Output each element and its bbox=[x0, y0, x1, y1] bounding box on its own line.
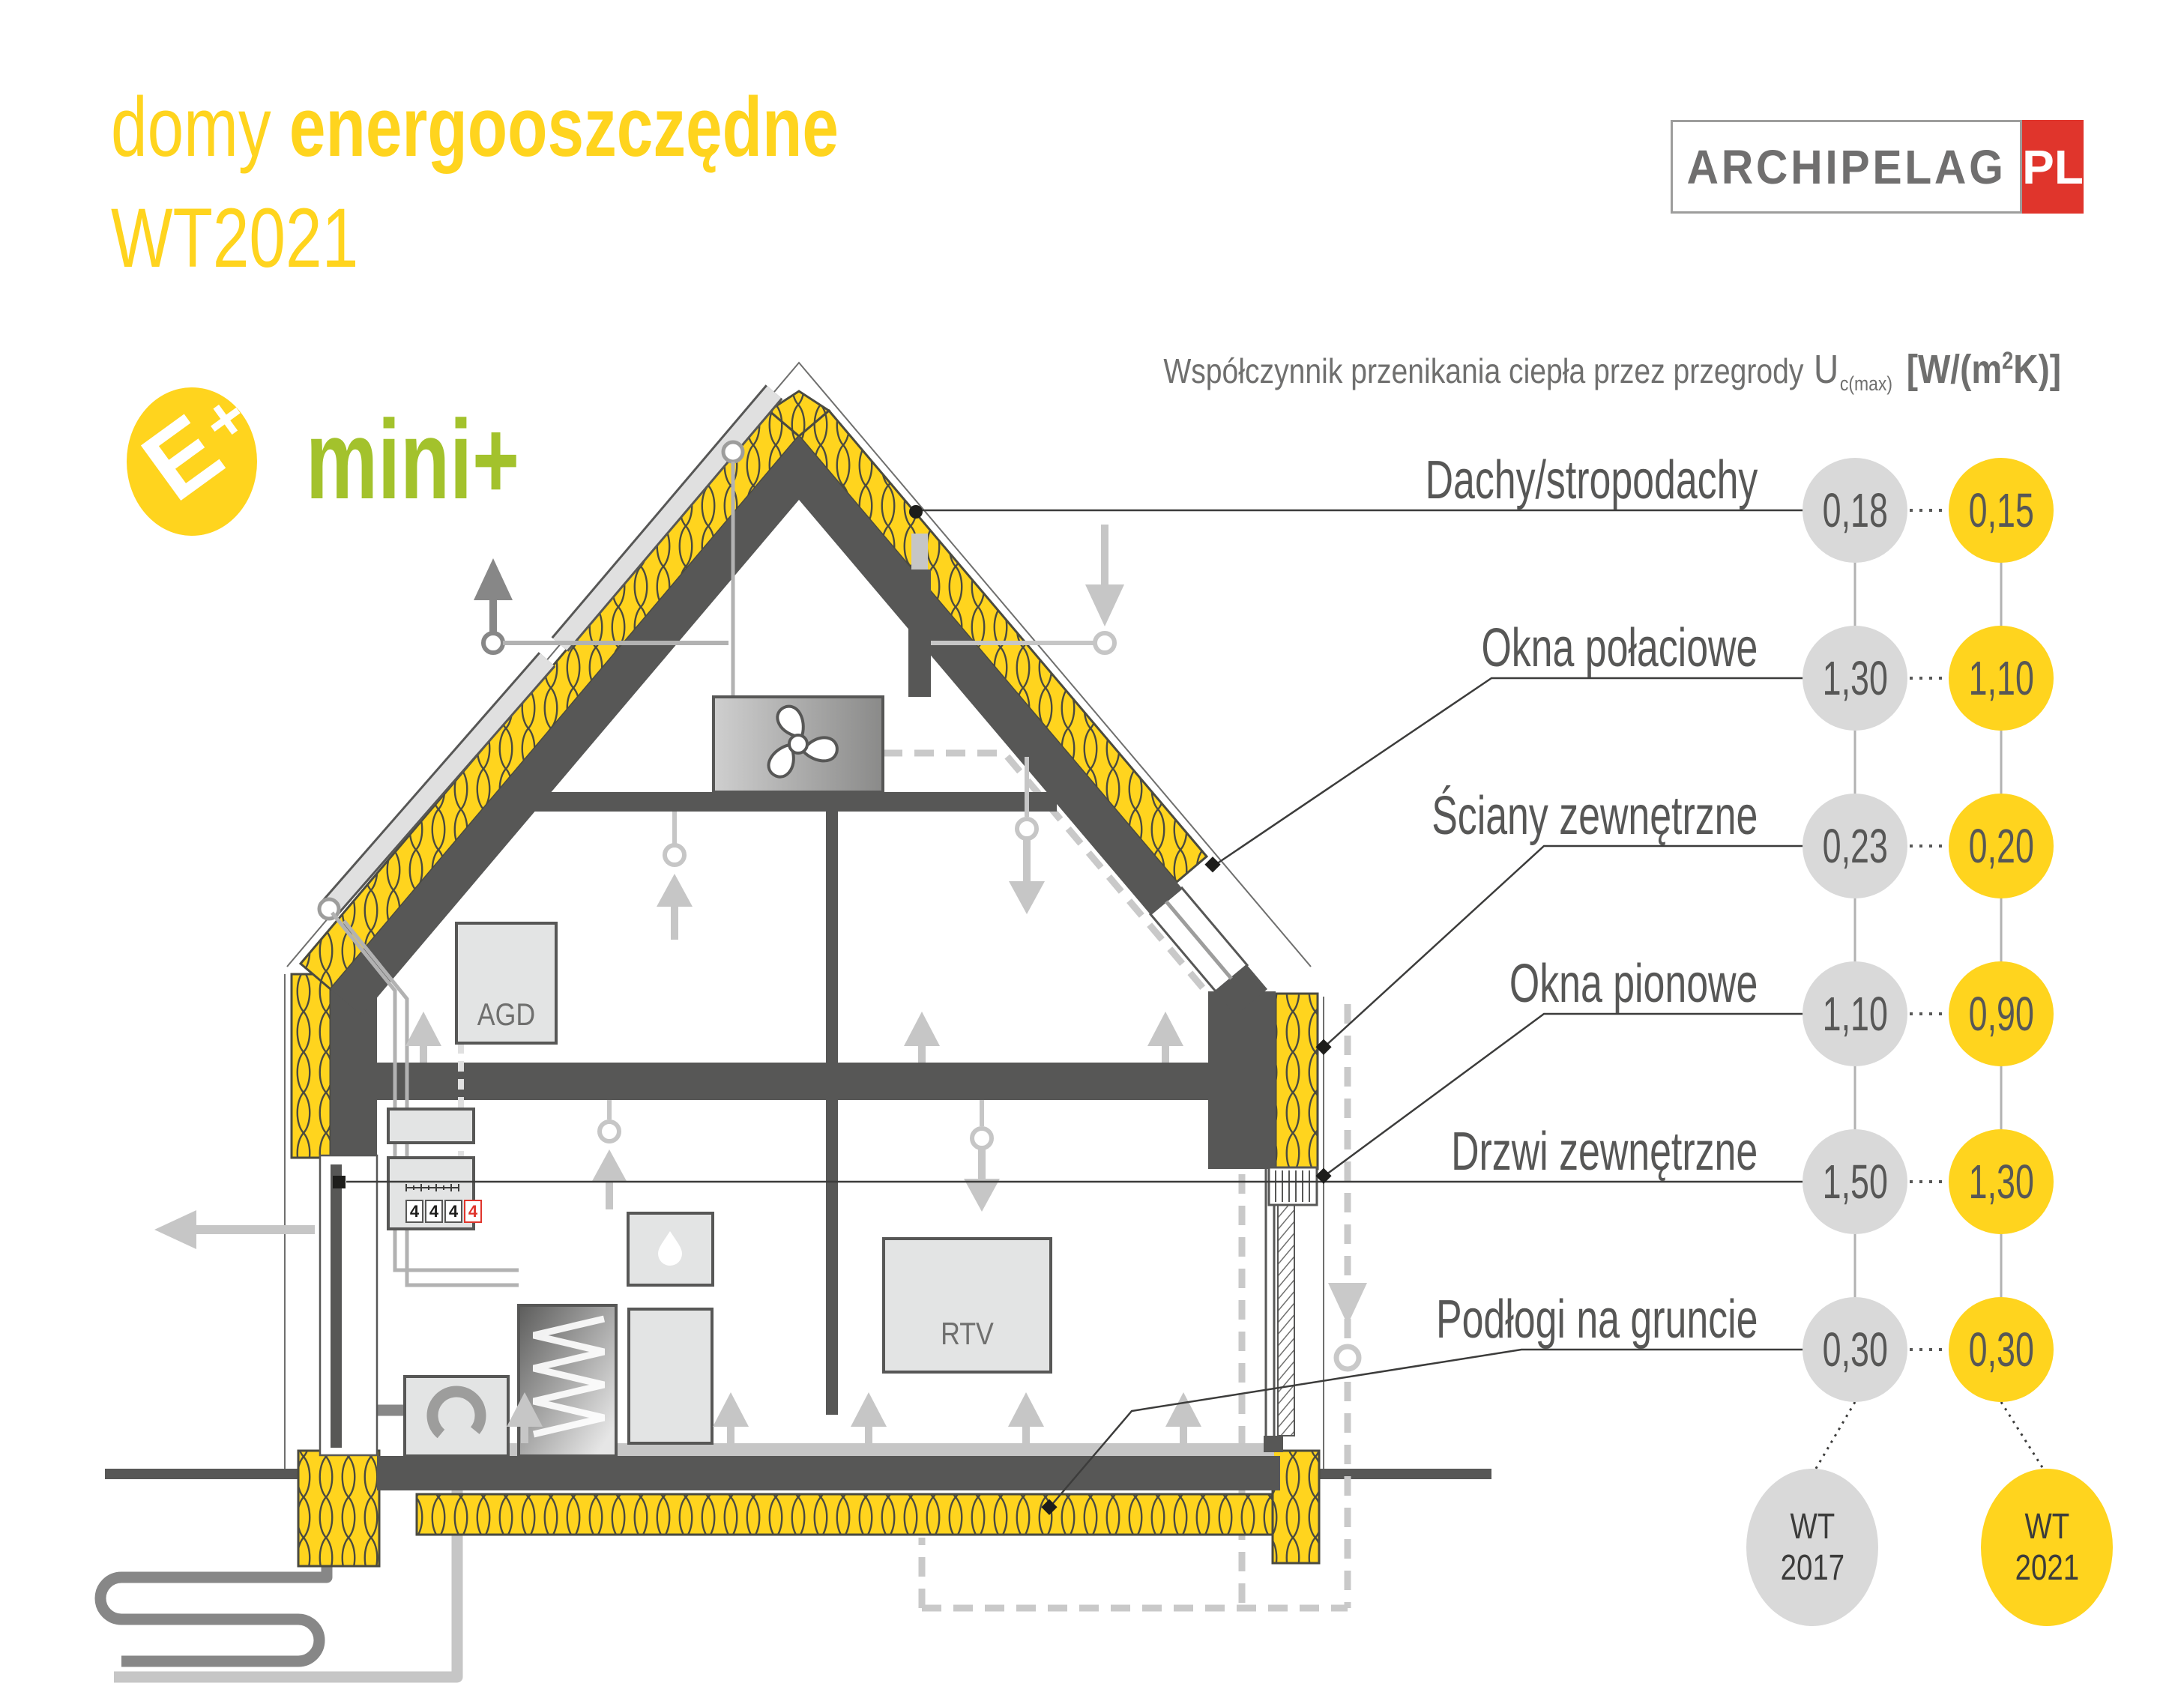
chimney bbox=[908, 534, 931, 697]
callout-exterior-wall bbox=[1324, 846, 1803, 1048]
logo-tld: PL bbox=[2022, 139, 2084, 195]
value-wt2021-exterior-doors: 1,30 bbox=[1949, 1129, 2054, 1234]
value-wt2017-vertical-windows: 1,10 bbox=[1803, 961, 1907, 1066]
fridge-box bbox=[629, 1309, 712, 1443]
title-bold: energooszczędne bbox=[289, 80, 839, 174]
rtv-label: RTV bbox=[896, 1316, 1039, 1352]
row-label-exterior-walls: Ściany zewnętrzne bbox=[1305, 785, 1758, 843]
roof-window bbox=[1150, 888, 1247, 991]
value-wt2017-exterior-doors: 1,50 bbox=[1803, 1129, 1907, 1234]
left-wall bbox=[331, 989, 377, 1155]
mini-plus-label: mini+ bbox=[306, 403, 519, 516]
vertical-window bbox=[1264, 1167, 1317, 1452]
column-badge-wt2017: WT2017 bbox=[1746, 1469, 1878, 1626]
table-header: Współczynnik przenikania ciepła przez pr… bbox=[1163, 346, 2061, 393]
title-light: domy bbox=[111, 80, 271, 174]
roller-shutter-box bbox=[1269, 1167, 1317, 1205]
right-wall-insulation bbox=[1276, 994, 1318, 1169]
ventilation-unit bbox=[405, 1377, 508, 1456]
exhaust-arrow bbox=[154, 1210, 315, 1249]
row-label-roofs: Dachy/stropodachy bbox=[1296, 449, 1758, 507]
meter-digits: 4444 bbox=[405, 1200, 482, 1223]
heat-recovery-unit bbox=[714, 697, 883, 792]
value-wt2017-roof-windows: 1,30 bbox=[1803, 626, 1907, 731]
logo-tld-box: PL bbox=[2022, 120, 2084, 214]
page-title: domy energooszczędne WT2021 bbox=[111, 72, 839, 294]
left-wall-insulation bbox=[292, 974, 331, 1158]
collar-beam bbox=[523, 792, 1057, 812]
washing-machine bbox=[628, 1213, 713, 1285]
column-badge-wt2021: WT2021 bbox=[1981, 1469, 2113, 1626]
row-label-roof-windows: Okna połaciowe bbox=[1374, 617, 1758, 675]
hot-water-tank bbox=[519, 1305, 616, 1456]
fusebox bbox=[388, 1109, 474, 1143]
eplus-badge: E + bbox=[127, 387, 257, 536]
value-wt2017-roofs: 0,18 bbox=[1803, 458, 1907, 563]
interior-wall-lower bbox=[826, 1100, 838, 1415]
value-wt2021-roofs: 0,15 bbox=[1949, 458, 2054, 563]
row-label-ground-floors: Podłogi na gruncie bbox=[1311, 1288, 1758, 1347]
floor-insulation bbox=[417, 1494, 1279, 1535]
row-label-vertical-windows: Okna pionowe bbox=[1413, 952, 1758, 1011]
logo-wordbox: ARCHIPELAG bbox=[1671, 120, 2022, 214]
header-unit: [W/(m2K)] bbox=[1907, 346, 2061, 393]
value-wt2017-exterior-walls: 0,23 bbox=[1803, 794, 1907, 898]
interior-wall-upper bbox=[826, 812, 838, 1063]
value-wt2021-ground-floors: 0,30 bbox=[1949, 1297, 2054, 1402]
logo-word: ARCHIPELAG bbox=[1687, 139, 2006, 195]
row-label-exterior-doors: Drzwi zewnętrzne bbox=[1332, 1120, 1758, 1179]
header-symbol: Uc(max) bbox=[1814, 346, 1892, 393]
infographic: domy energooszczędne WT2021 ARCHIPELAG P… bbox=[0, 0, 2184, 1695]
archipelag-logo: ARCHIPELAG PL bbox=[1671, 120, 2054, 214]
value-wt2021-vertical-windows: 0,90 bbox=[1949, 961, 2054, 1066]
value-wt2021-roof-windows: 1,10 bbox=[1949, 626, 2054, 731]
foundation-left bbox=[298, 1451, 379, 1566]
value-wt2021-exterior-walls: 0,20 bbox=[1949, 794, 2054, 898]
rtv-box bbox=[884, 1239, 1051, 1372]
header-text: Współczynnik przenikania ciepła przez pr… bbox=[1163, 351, 1803, 391]
entrance-door bbox=[320, 1155, 377, 1455]
floor-slab bbox=[377, 1456, 1280, 1490]
agd-label: AGD bbox=[464, 997, 549, 1033]
value-wt2017-ground-floors: 0,30 bbox=[1803, 1297, 1907, 1402]
attic-slab bbox=[377, 1063, 1233, 1100]
title-line2: WT2021 bbox=[111, 183, 839, 294]
